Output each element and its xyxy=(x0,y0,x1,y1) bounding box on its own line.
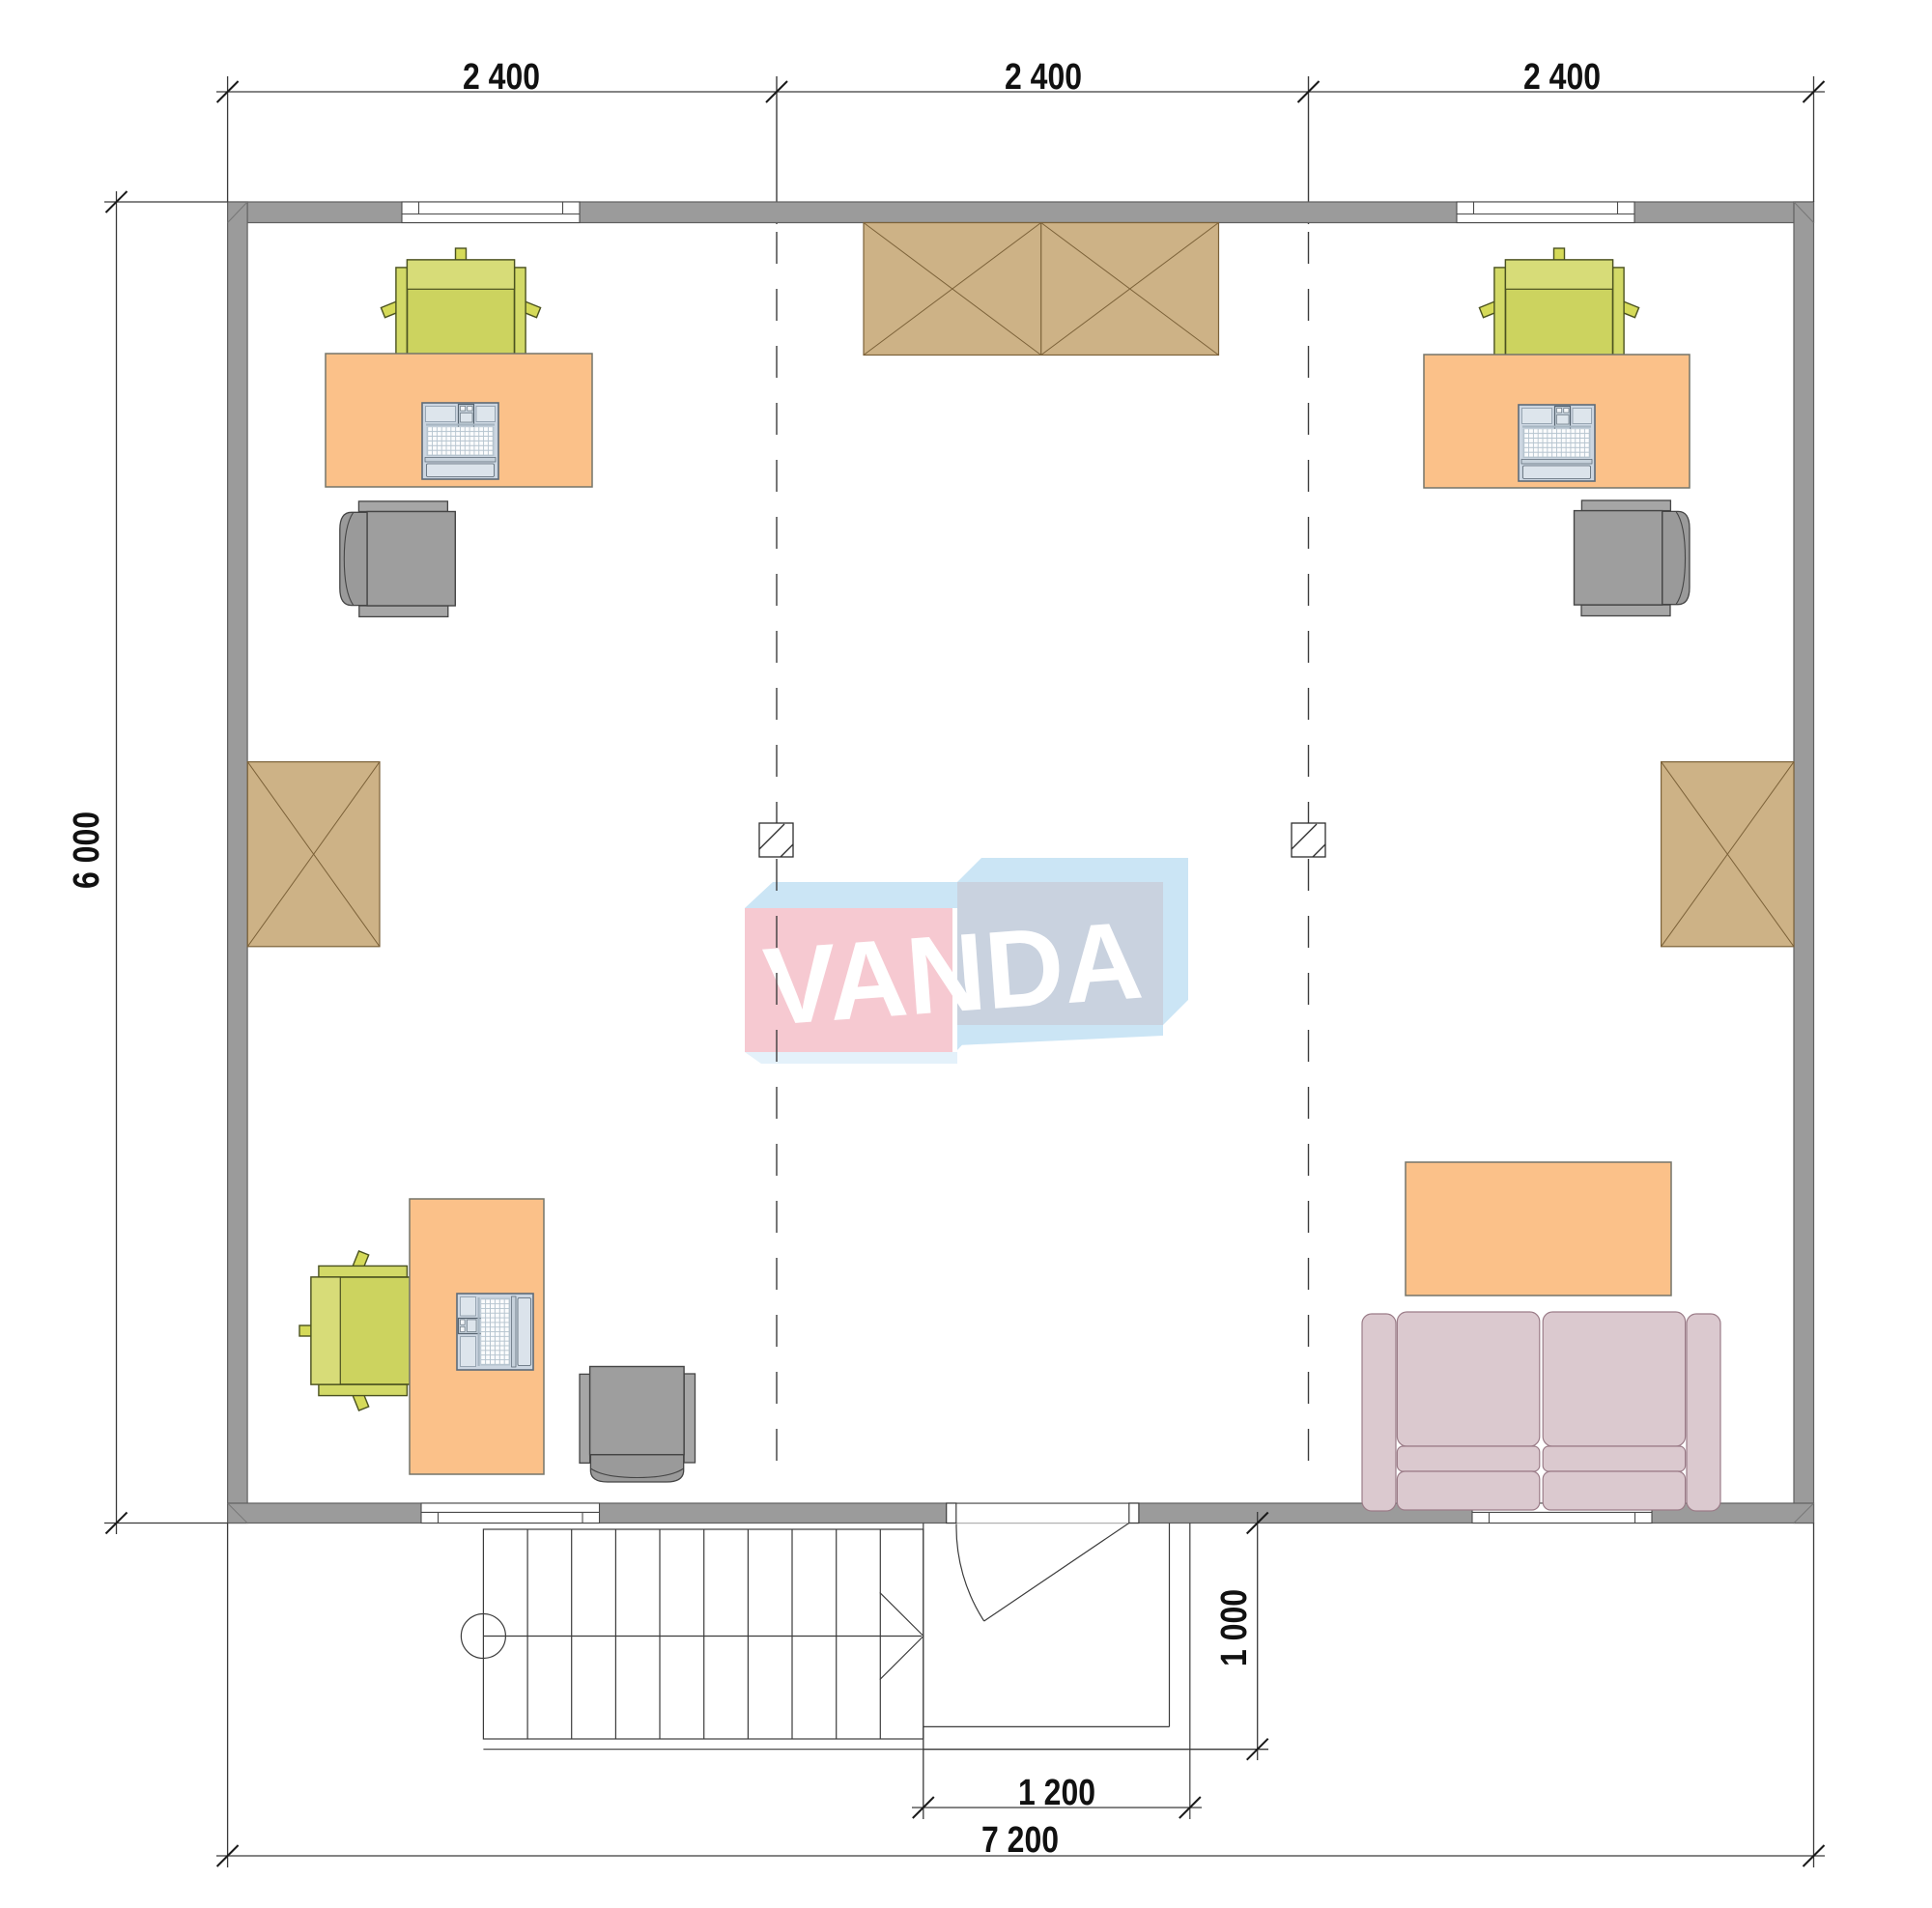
svg-text:1 000: 1 000 xyxy=(1214,1589,1255,1666)
svg-text:2 400: 2 400 xyxy=(1005,57,1082,98)
svg-text:1 200: 1 200 xyxy=(1018,1773,1095,1813)
svg-text:2 400: 2 400 xyxy=(1523,57,1601,98)
svg-text:7 200: 7 200 xyxy=(981,1820,1059,1861)
svg-text:6 000: 6 000 xyxy=(67,812,107,889)
svg-text:2 400: 2 400 xyxy=(463,57,540,98)
